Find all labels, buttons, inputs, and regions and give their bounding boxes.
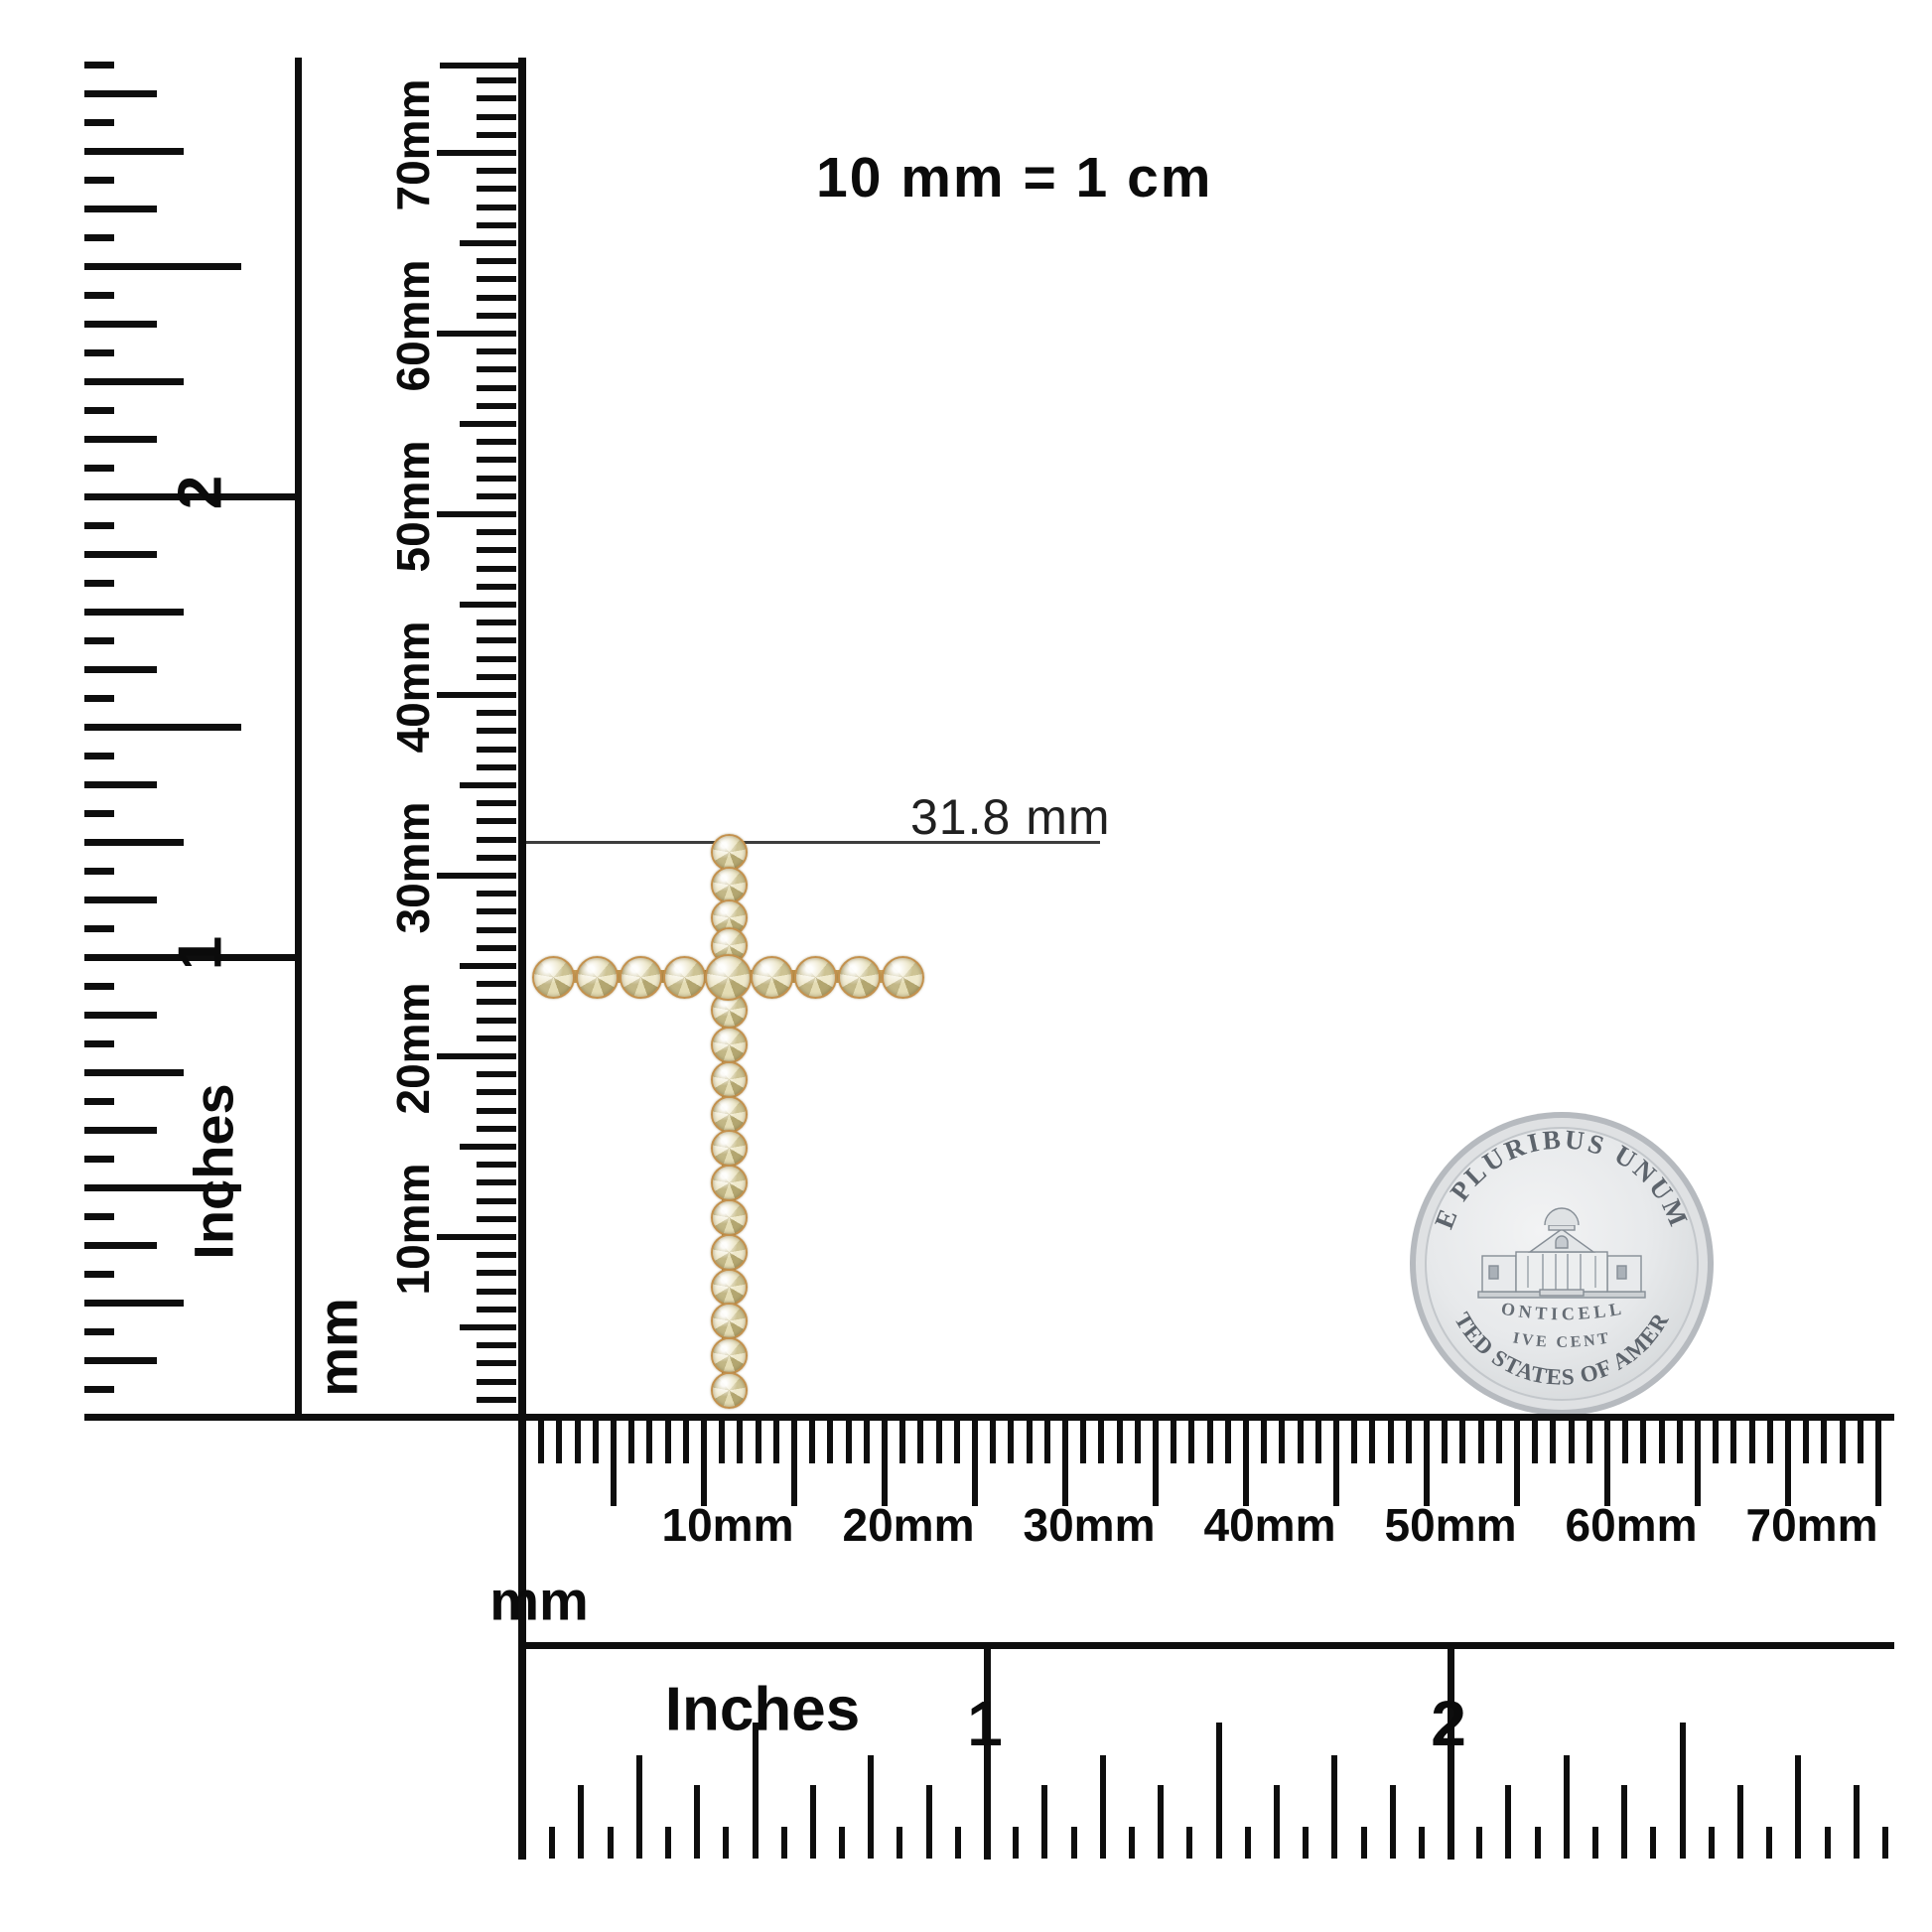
tick — [694, 1785, 700, 1859]
ruler-label: 10mm — [662, 1498, 794, 1552]
tick — [723, 1827, 729, 1859]
tick — [827, 1421, 833, 1463]
diamond-stone — [711, 1234, 748, 1271]
tick — [477, 981, 516, 987]
tick — [773, 1421, 779, 1463]
tick — [1406, 1421, 1412, 1463]
tick — [1858, 1421, 1863, 1463]
tick — [897, 1827, 902, 1859]
tick — [84, 637, 114, 644]
tick — [1216, 1723, 1222, 1859]
tick — [437, 873, 516, 879]
tick — [1207, 1421, 1213, 1463]
ruler-label: 40mm — [386, 621, 440, 754]
tick — [575, 1421, 581, 1463]
tick — [1695, 1421, 1701, 1506]
tick — [84, 1213, 114, 1220]
tick — [477, 132, 516, 138]
tick — [477, 1342, 516, 1348]
ruler-label: 30mm — [1024, 1498, 1156, 1552]
diamond-stone — [751, 956, 793, 999]
tick — [477, 1035, 516, 1041]
tick — [477, 366, 516, 372]
tick — [477, 77, 516, 83]
tick — [477, 800, 516, 806]
tick — [756, 1421, 761, 1463]
ruler-label: 40mm — [1204, 1498, 1336, 1552]
tick — [477, 403, 516, 409]
tick — [84, 810, 114, 817]
diamond-stone — [711, 1337, 748, 1374]
tick — [1659, 1421, 1665, 1463]
tick — [1875, 1421, 1881, 1506]
tick — [1261, 1421, 1267, 1463]
tick — [84, 378, 184, 385]
tick — [84, 177, 114, 184]
tick — [791, 1421, 797, 1506]
tick — [84, 90, 157, 97]
tick — [864, 1421, 870, 1463]
tick — [1478, 1421, 1484, 1463]
tick — [1680, 1723, 1686, 1859]
tick — [477, 385, 516, 391]
tick — [84, 1012, 157, 1019]
ruler-label: 1 — [166, 936, 236, 970]
tick — [477, 891, 516, 897]
tick — [1135, 1421, 1141, 1463]
tick — [1298, 1421, 1304, 1463]
tick — [460, 602, 516, 608]
tick — [810, 1785, 816, 1859]
tick — [477, 114, 516, 120]
tick — [437, 331, 516, 337]
diamond-stone — [882, 956, 924, 999]
tick — [1369, 1421, 1375, 1463]
tick — [477, 656, 516, 662]
tick — [1677, 1421, 1683, 1463]
tick — [1129, 1827, 1135, 1859]
ruler-label: 50mm — [386, 441, 440, 573]
scale-note: 10 mm = 1 cm — [816, 145, 1212, 210]
tick — [84, 1386, 114, 1393]
diamond-stone — [620, 956, 662, 999]
tick — [477, 637, 516, 643]
tick — [84, 119, 114, 126]
tick — [1882, 1827, 1888, 1859]
tick — [84, 62, 114, 69]
tick — [955, 1827, 961, 1859]
tick — [1225, 1421, 1231, 1463]
tick — [84, 580, 114, 587]
tick — [683, 1421, 689, 1463]
tick — [1008, 1421, 1014, 1463]
tick — [84, 868, 114, 875]
tick — [972, 1421, 978, 1506]
tick — [1795, 1755, 1801, 1859]
tick — [1713, 1421, 1719, 1463]
tick — [1315, 1421, 1321, 1463]
tick — [917, 1421, 923, 1463]
tick — [477, 1270, 516, 1276]
tick — [477, 999, 516, 1005]
ruler-label: 10mm — [386, 1164, 440, 1296]
tick — [1274, 1785, 1280, 1859]
tick — [477, 476, 516, 482]
tick — [1505, 1785, 1511, 1859]
tick — [84, 609, 184, 616]
tick — [1569, 1421, 1575, 1463]
measurement-label: 31.8 mm — [910, 788, 1111, 846]
tick — [437, 1234, 516, 1240]
tick — [1243, 1421, 1249, 1506]
tick — [1640, 1421, 1646, 1463]
tick — [84, 1040, 114, 1047]
tick — [437, 692, 516, 698]
tick — [636, 1755, 642, 1859]
tick — [84, 1271, 114, 1278]
tick — [846, 1421, 852, 1463]
tick — [1767, 1421, 1773, 1463]
tick — [477, 620, 516, 625]
tick — [1361, 1827, 1367, 1859]
tick — [460, 1144, 516, 1150]
tick — [646, 1421, 652, 1463]
nickel-coin: E PLURIBUS UNUM UNITED STATES OF AMERICA… — [1407, 1109, 1717, 1419]
tick — [608, 1827, 614, 1859]
tick — [1419, 1827, 1425, 1859]
tick — [578, 1785, 584, 1859]
tick — [1587, 1421, 1592, 1463]
tick — [477, 584, 516, 590]
ruler-label: 1 — [967, 1687, 1003, 1760]
tick — [1737, 1785, 1743, 1859]
tick — [1044, 1421, 1050, 1463]
tick — [477, 1360, 516, 1366]
tick — [84, 1184, 241, 1191]
tick — [477, 1089, 516, 1095]
tick — [1158, 1785, 1164, 1859]
tick — [84, 551, 157, 558]
tick — [1100, 1755, 1106, 1859]
tick — [477, 295, 516, 301]
left-inches-ruler-edge-line — [295, 58, 302, 1418]
tick — [84, 1242, 157, 1249]
tick — [84, 522, 114, 529]
tick — [477, 529, 516, 535]
tick — [84, 1127, 157, 1134]
tick — [628, 1421, 634, 1463]
tick — [1650, 1827, 1656, 1859]
tick — [477, 1289, 516, 1295]
tick — [477, 710, 516, 716]
tick — [84, 1098, 114, 1105]
diamond-stone — [532, 956, 575, 999]
ruler-label: 60mm — [1566, 1498, 1698, 1552]
tick — [701, 1421, 707, 1506]
diamond-stone — [576, 956, 619, 999]
bottom-mm-unit-label: mm — [489, 1569, 589, 1633]
tick — [84, 753, 114, 759]
tick — [84, 349, 114, 356]
diamond-stone — [711, 1165, 748, 1201]
tick — [84, 234, 114, 241]
tick — [477, 276, 516, 282]
tick — [477, 1162, 516, 1168]
tick — [990, 1421, 996, 1463]
tick — [84, 465, 114, 472]
tick — [477, 1379, 516, 1385]
tick — [477, 1108, 516, 1114]
tick — [1821, 1421, 1827, 1463]
ruler-label: 30mm — [386, 802, 440, 934]
tick — [84, 321, 157, 328]
tick — [84, 925, 114, 932]
tick — [477, 439, 516, 445]
left-mm-ruler-top-cap — [440, 63, 526, 69]
tick — [477, 927, 516, 933]
tick — [1514, 1421, 1520, 1506]
tick — [477, 1179, 516, 1185]
tick — [84, 206, 157, 212]
tick — [84, 781, 157, 788]
ruler-label: 20mm — [386, 983, 440, 1115]
tick — [1080, 1421, 1086, 1463]
tick — [84, 839, 184, 846]
tick — [1062, 1421, 1068, 1506]
tick — [1303, 1827, 1309, 1859]
tick — [477, 1198, 516, 1204]
tick — [460, 963, 516, 969]
diamond-stone — [711, 1096, 748, 1133]
tick — [1550, 1421, 1556, 1463]
tick — [477, 1397, 516, 1403]
tick — [1459, 1421, 1465, 1463]
tick — [84, 407, 114, 414]
left-mm-unit-label: mm — [306, 1298, 370, 1397]
tick — [1041, 1785, 1047, 1859]
diamond-stone — [711, 1130, 748, 1167]
tick — [477, 222, 516, 228]
ruler-label: 70mm — [1746, 1498, 1878, 1552]
tick — [1803, 1421, 1809, 1463]
tick — [460, 240, 516, 246]
tick — [1442, 1421, 1448, 1463]
tick — [1071, 1827, 1077, 1859]
diamond-stone — [711, 834, 748, 871]
tick — [84, 1357, 157, 1364]
tick — [1825, 1827, 1831, 1859]
tick — [84, 292, 114, 299]
tick — [1840, 1421, 1846, 1463]
tick — [1098, 1421, 1104, 1463]
tick — [753, 1723, 759, 1859]
tick — [1279, 1421, 1285, 1463]
tick — [1476, 1827, 1482, 1859]
tick — [839, 1827, 845, 1859]
diamond-stone — [663, 956, 706, 999]
tick — [1188, 1421, 1194, 1463]
tick — [460, 782, 516, 788]
tick — [1564, 1755, 1570, 1859]
tick — [437, 511, 516, 517]
tick — [1592, 1827, 1598, 1859]
tick — [477, 457, 516, 463]
diamond-stone — [711, 1303, 748, 1339]
tick — [477, 1071, 516, 1077]
tick — [781, 1827, 787, 1859]
tick — [477, 95, 516, 101]
tick — [926, 1785, 932, 1859]
tick — [899, 1421, 905, 1463]
tick — [84, 263, 241, 270]
tick — [611, 1421, 617, 1506]
tick — [1785, 1421, 1791, 1506]
tick — [665, 1827, 671, 1859]
tick — [549, 1827, 555, 1859]
tick — [477, 205, 516, 210]
tick — [84, 666, 157, 673]
tick — [1496, 1421, 1502, 1463]
tick — [1730, 1421, 1736, 1463]
diamond-stone — [711, 1027, 748, 1063]
tick — [460, 1324, 516, 1330]
jewelry-size-guide: 10 mm = 1 cm Inches 21 mm 10mm20mm30mm40… — [0, 0, 1932, 1932]
tick — [477, 747, 516, 753]
tick — [1532, 1421, 1538, 1463]
left-inches-unit-label: Inches — [182, 1083, 246, 1259]
ruler-label: 60mm — [386, 260, 440, 392]
tick — [1621, 1785, 1627, 1859]
tick — [477, 908, 516, 914]
tick — [84, 1069, 184, 1076]
tick — [84, 724, 241, 731]
tick — [477, 547, 516, 553]
tick — [84, 1300, 184, 1307]
tick — [477, 837, 516, 843]
ruler-label: 50mm — [1385, 1498, 1517, 1552]
diamond-stone — [794, 956, 837, 999]
tick — [882, 1421, 888, 1506]
tick — [477, 186, 516, 192]
diamond-stone — [711, 1372, 748, 1409]
tick — [1388, 1421, 1394, 1463]
tick — [1027, 1421, 1033, 1463]
tick — [477, 1216, 516, 1222]
tick — [1622, 1421, 1628, 1463]
tick — [477, 674, 516, 680]
tick — [1390, 1785, 1396, 1859]
tick — [477, 855, 516, 861]
tick — [1424, 1421, 1430, 1506]
tick — [1749, 1421, 1755, 1463]
tick — [477, 168, 516, 174]
tick — [437, 1053, 516, 1059]
tick — [737, 1421, 743, 1463]
ruler-label: 2 — [166, 476, 236, 509]
tick — [477, 566, 516, 572]
diamond-stone — [711, 1061, 748, 1098]
tick — [477, 493, 516, 499]
tick — [84, 897, 157, 903]
tick — [84, 436, 157, 443]
diamond-stone — [705, 954, 752, 1001]
tick — [1854, 1785, 1860, 1859]
tick — [954, 1421, 960, 1463]
tick — [1766, 1827, 1772, 1859]
tick — [477, 945, 516, 951]
tick — [477, 1126, 516, 1132]
tick — [1709, 1827, 1715, 1859]
tick — [1171, 1421, 1176, 1463]
diamond-stone — [838, 956, 881, 999]
tick — [477, 313, 516, 319]
tick — [1245, 1827, 1251, 1859]
tick — [593, 1421, 599, 1463]
ruler-label: 20mm — [843, 1498, 975, 1552]
tick — [477, 728, 516, 734]
diamond-stone — [711, 867, 748, 903]
tick — [437, 150, 516, 156]
tick — [868, 1755, 874, 1859]
tick — [1013, 1827, 1019, 1859]
tick — [1153, 1421, 1159, 1506]
diamond-stone — [711, 1269, 748, 1306]
tick — [1535, 1827, 1541, 1859]
tick — [477, 1252, 516, 1258]
tick — [477, 764, 516, 770]
bottom-inches-unit-label: Inches — [665, 1675, 860, 1745]
tick — [477, 1307, 516, 1312]
tick — [719, 1421, 725, 1463]
tick — [1351, 1421, 1357, 1463]
tick — [84, 983, 114, 990]
tick — [1331, 1755, 1337, 1859]
tick — [84, 1328, 114, 1335]
tick — [477, 348, 516, 354]
tick — [1333, 1421, 1339, 1506]
ruler-label: 2 — [1431, 1687, 1466, 1760]
tick — [477, 258, 516, 264]
bottom-mm-ruler-top-line — [84, 1414, 1894, 1421]
tick — [1186, 1827, 1192, 1859]
tick — [936, 1421, 942, 1463]
tick — [84, 1156, 114, 1163]
tick — [809, 1421, 815, 1463]
tick — [538, 1421, 544, 1463]
tick — [84, 695, 114, 702]
tick — [477, 1018, 516, 1024]
tick — [665, 1421, 671, 1463]
tick — [556, 1421, 562, 1463]
tick — [1117, 1421, 1123, 1463]
tick — [84, 148, 184, 155]
diamond-stone — [711, 1199, 748, 1236]
tick — [460, 421, 516, 427]
tick — [477, 818, 516, 824]
ruler-label: 70mm — [386, 79, 440, 211]
tick — [1604, 1421, 1610, 1506]
bottom-inches-ruler-top-line — [523, 1642, 1894, 1649]
